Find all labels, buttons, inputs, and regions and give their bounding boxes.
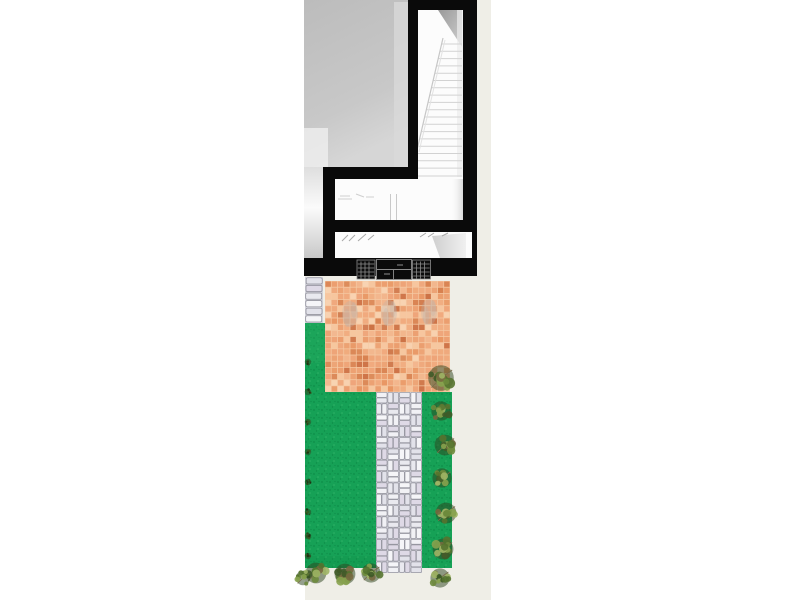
gray-room-wall-face [394, 2, 408, 167]
floor-plan [304, 0, 477, 280]
stair-right-shade [457, 10, 463, 177]
lawn-light-wash [305, 323, 325, 363]
garden [295, 277, 458, 588]
upper-room-shading [450, 179, 463, 220]
plan-drawing [0, 0, 800, 600]
side-strip [304, 167, 323, 258]
gate [357, 260, 431, 280]
gray-room-floor-light [304, 128, 328, 167]
upper-room [335, 179, 463, 220]
design-canvas [0, 0, 800, 600]
